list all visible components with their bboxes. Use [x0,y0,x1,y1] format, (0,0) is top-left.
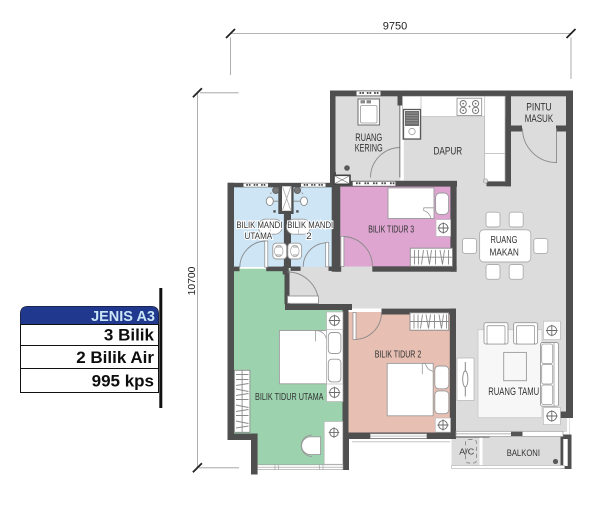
svg-text:3 Bilik: 3 Bilik [104,326,155,345]
svg-text:MASUK: MASUK [525,113,554,125]
svg-text:DAPUR: DAPUR [434,146,463,158]
svg-text:PINTU: PINTU [526,102,552,114]
svg-text:KERING: KERING [355,143,383,155]
svg-text:BILIK TIDUR 2: BILIK TIDUR 2 [375,349,422,360]
svg-text:9750: 9750 [383,21,407,33]
svg-text:BILIK TIDUR UTAMA: BILIK TIDUR UTAMA [255,392,324,403]
svg-text:10700: 10700 [187,266,198,295]
svg-text:RUANG: RUANG [491,235,518,246]
svg-text:2 Bilik Air: 2 Bilik Air [76,348,154,367]
svg-text:BALKONI: BALKONI [507,448,540,459]
svg-text:MAKAN: MAKAN [490,247,519,258]
svg-text:995 kps: 995 kps [92,372,154,391]
svg-text:A/C: A/C [459,446,474,456]
svg-text:RUANG TAMU: RUANG TAMU [488,386,539,398]
svg-text:BILIK MANDI: BILIK MANDI [287,220,333,231]
svg-text:UTAMA: UTAMA [245,231,273,242]
svg-text:BILIK TIDUR 3: BILIK TIDUR 3 [368,225,414,236]
svg-text:BILIK MANDI: BILIK MANDI [236,220,282,231]
svg-text:2: 2 [306,231,311,242]
svg-text:JENIS A3: JENIS A3 [91,309,155,325]
